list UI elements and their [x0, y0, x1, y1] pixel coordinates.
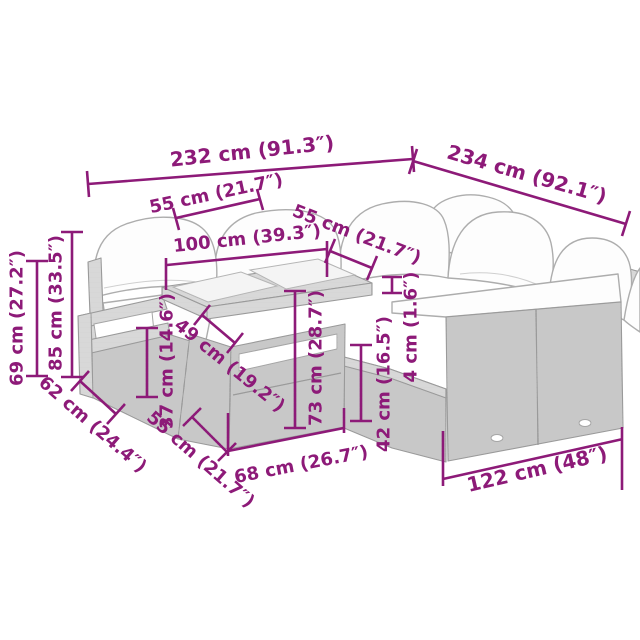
dim-label: 85 cm (33.5″)	[45, 235, 66, 371]
diagram-canvas: 232 cm (91.3″) 234 cm (92.1″) 55 cm (21.…	[0, 0, 640, 640]
dim-label: 68 cm (26.7″)	[232, 442, 369, 489]
dim-label: 69 cm (27.2″)	[6, 250, 27, 386]
dim-armrest-height: 69 cm (27.2″)	[6, 250, 48, 386]
dim-label: 42 cm (16.5″)	[373, 316, 394, 452]
dim-label: 73 cm (28.7″)	[305, 290, 326, 426]
dim-line	[382, 277, 402, 293]
dim-total-height: 85 cm (33.5″)	[45, 232, 83, 377]
right-sofa-front-panel	[446, 302, 623, 461]
furniture-dimension-diagram: 232 cm (91.3″) 234 cm (92.1″) 55 cm (21.…	[0, 0, 640, 640]
drain-hole	[491, 435, 503, 442]
drain-hole	[579, 420, 591, 427]
dim-label: 37 cm (14.6″)	[156, 293, 177, 429]
dim-label: 4 cm (1.6″)	[400, 272, 421, 383]
dim-label: 232 cm (91.3″)	[169, 130, 336, 171]
